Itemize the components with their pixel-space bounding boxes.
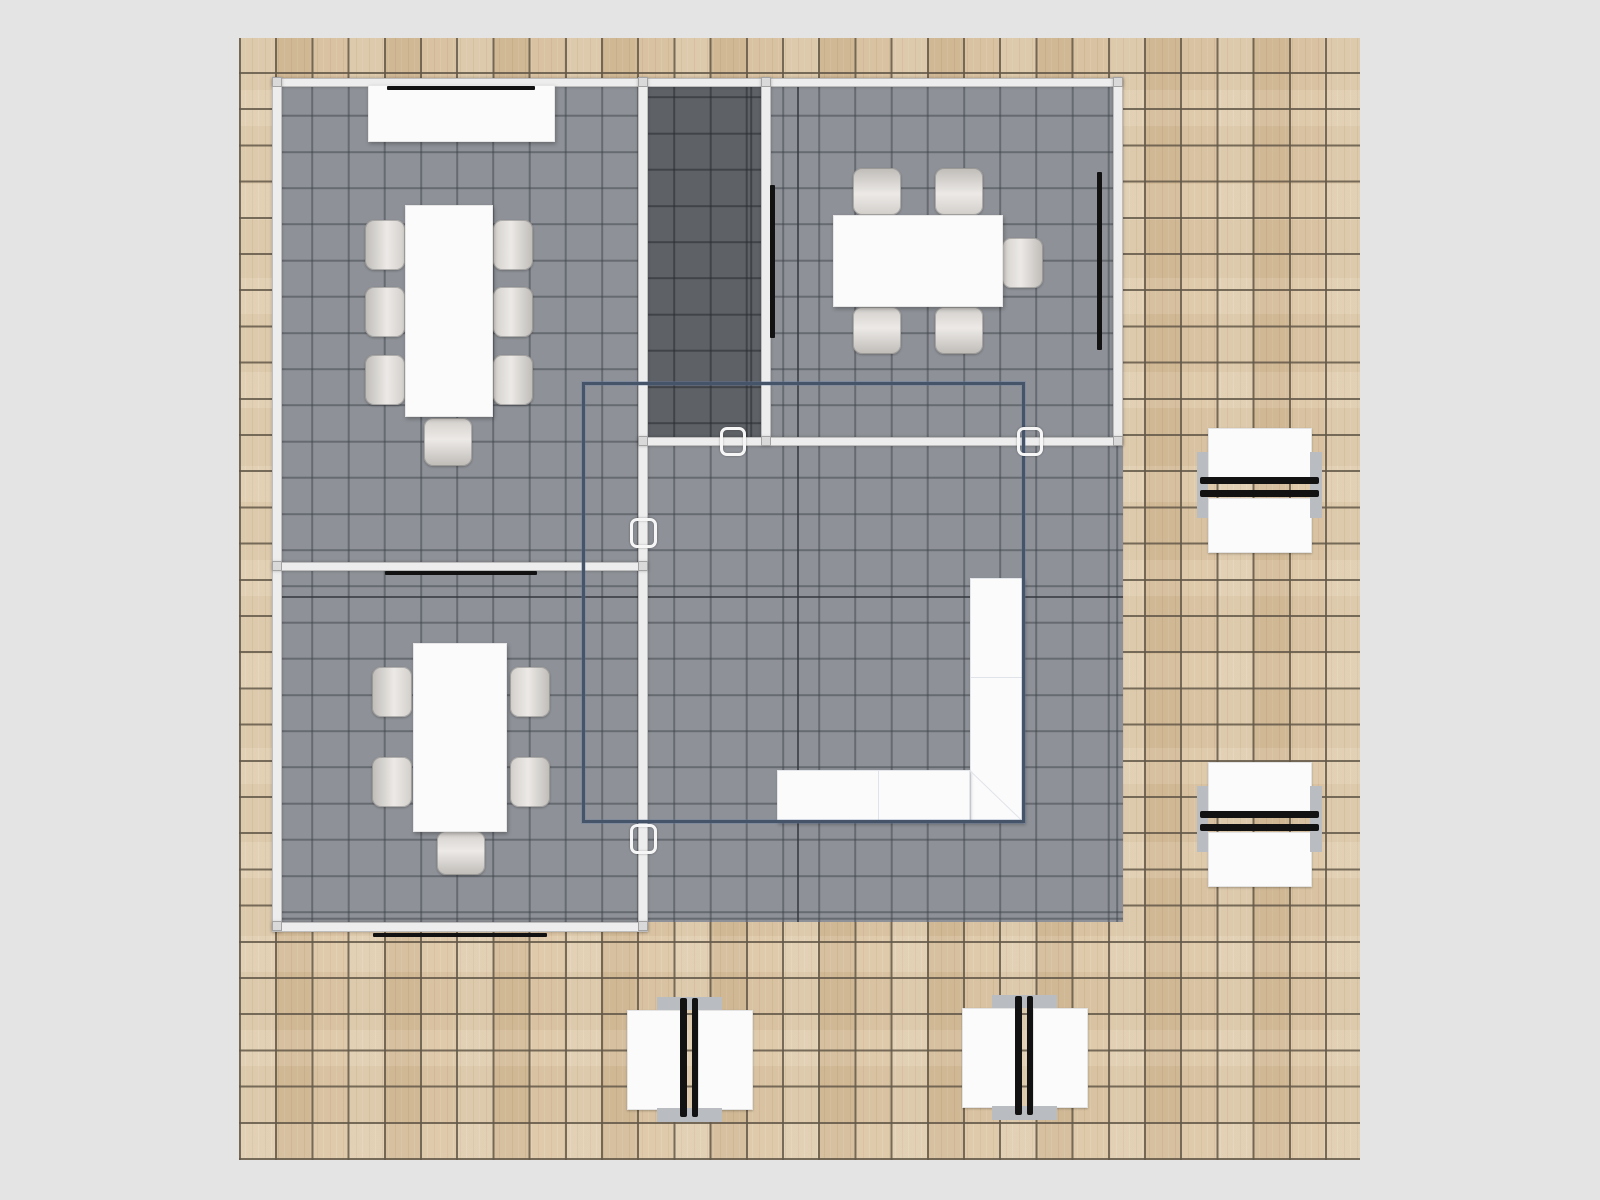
team-table[interactable] (413, 643, 507, 832)
side-panel (1197, 786, 1208, 852)
chair[interactable] (437, 831, 485, 875)
door-connector[interactable] (630, 518, 657, 548)
screen-meeting-room-left[interactable] (770, 185, 775, 338)
workstation-right-upper[interactable] (1196, 427, 1322, 551)
door-connector[interactable] (720, 427, 746, 456)
monitor-bar (1200, 490, 1319, 497)
wall-left[interactable] (272, 78, 282, 932)
monitor-bar (680, 998, 687, 1117)
chair[interactable] (372, 757, 412, 807)
chair[interactable] (372, 667, 412, 717)
desk (1208, 832, 1312, 887)
door-connector[interactable] (1017, 427, 1043, 456)
chair[interactable] (365, 355, 405, 405)
chair[interactable] (493, 287, 533, 337)
screen-team-room-top[interactable] (385, 571, 537, 575)
screen-meeting-room-right[interactable] (1097, 172, 1102, 350)
monitor-bar (1200, 824, 1319, 831)
wall-right[interactable] (1113, 78, 1123, 446)
chair[interactable] (493, 220, 533, 270)
floor-plan-canvas (0, 0, 1600, 1200)
wall-connector-post (638, 921, 648, 931)
chair[interactable] (510, 757, 550, 807)
chair[interactable] (853, 307, 901, 354)
wall-bottom-left[interactable] (272, 922, 648, 932)
side-panel (657, 997, 722, 1010)
chair[interactable] (853, 168, 901, 215)
side-panel (1310, 452, 1322, 518)
wall-connector-post (1113, 77, 1123, 87)
desk (962, 1008, 1017, 1108)
door-connector[interactable] (630, 824, 657, 854)
chair[interactable] (424, 418, 472, 466)
desk (1208, 428, 1312, 479)
desk (698, 1010, 753, 1110)
monitor-bar (1200, 477, 1319, 484)
chair[interactable] (365, 287, 405, 337)
wall-connector-post (272, 921, 282, 931)
desk (1208, 498, 1312, 553)
monitor-bar (692, 998, 698, 1117)
desk (627, 1010, 682, 1110)
side-panel (1310, 786, 1322, 852)
wall-connector-post (761, 77, 771, 87)
meeting-table[interactable] (833, 215, 1003, 307)
chair[interactable] (935, 168, 983, 215)
chair[interactable] (365, 220, 405, 270)
side-panel (992, 1106, 1057, 1120)
side-panel (657, 1108, 722, 1122)
wall-connector-post (638, 77, 648, 87)
overhead-structure-outline[interactable] (582, 382, 1025, 823)
desk (1033, 1008, 1088, 1108)
wall-connector-post (1113, 436, 1123, 446)
monitor-bar (1200, 811, 1319, 818)
chair[interactable] (493, 355, 533, 405)
side-panel (1197, 452, 1208, 518)
desk (1208, 762, 1312, 813)
wall-connector-post (272, 77, 282, 87)
workstation-right-lower[interactable] (1196, 761, 1322, 885)
conference-table[interactable] (405, 205, 493, 417)
chair[interactable] (510, 667, 550, 717)
credenza[interactable] (368, 85, 555, 142)
monitor-bar (1015, 996, 1022, 1115)
workstation-bottom-right[interactable] (961, 994, 1086, 1120)
workstation-bottom-left[interactable] (626, 996, 751, 1122)
chair[interactable] (1002, 238, 1043, 288)
monitor-bar (1027, 996, 1033, 1115)
chair[interactable] (935, 307, 983, 354)
screen-conference-room-top[interactable] (387, 86, 535, 90)
wall-connector-post (272, 561, 282, 571)
side-panel (992, 995, 1057, 1008)
screen-outside-bottom[interactable] (373, 933, 547, 937)
